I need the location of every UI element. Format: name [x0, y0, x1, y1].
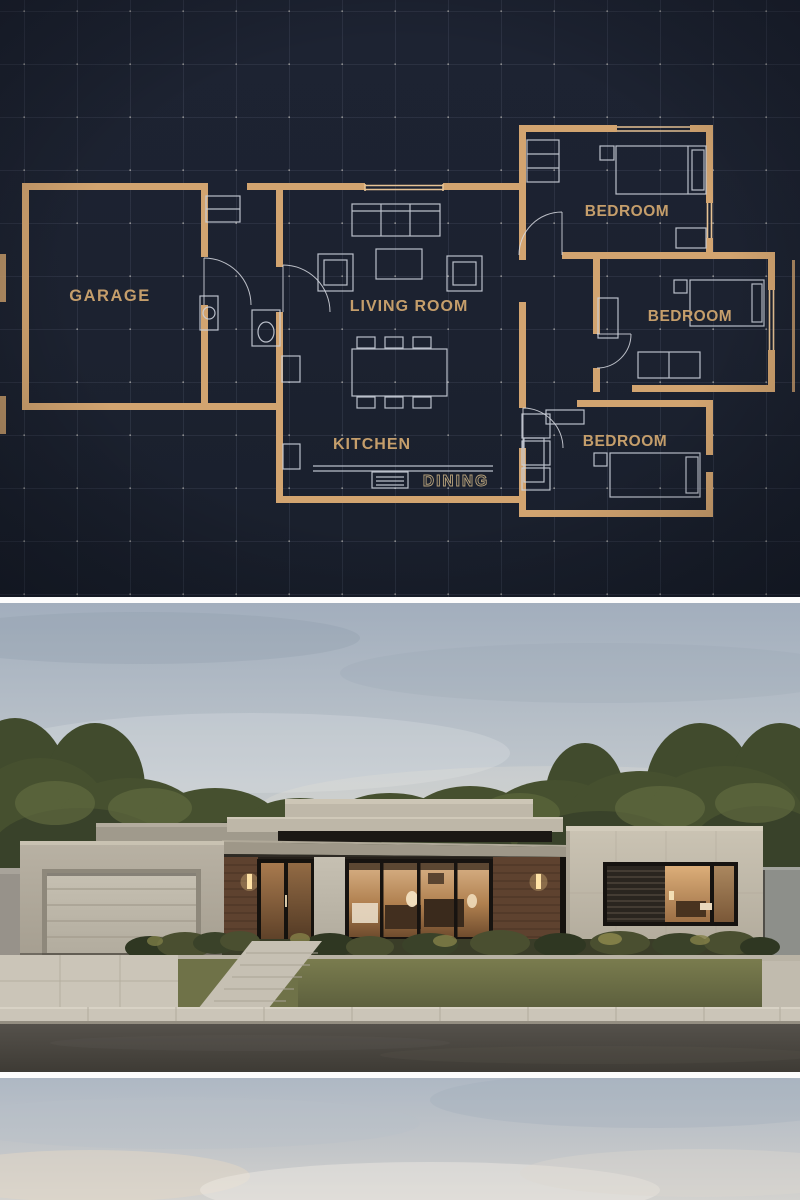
bedroom-window [603, 862, 738, 926]
entry-pillar [314, 857, 345, 943]
vignette-overlay [0, 0, 800, 597]
living-room-window [345, 859, 493, 941]
driveway [0, 955, 178, 1009]
floor-plan-section: GARAGE LIVING ROOM KITCHEN BEDROOM BEDRO… [0, 0, 800, 597]
side-path-right [762, 961, 800, 1009]
entry-sconce-left [247, 874, 252, 889]
floor-plan-image: GARAGE LIVING ROOM KITCHEN BEDROOM BEDRO… [0, 0, 800, 597]
wood-cladding-right [493, 857, 568, 943]
door-handle [285, 895, 287, 907]
page: GARAGE LIVING ROOM KITCHEN BEDROOM BEDRO… [0, 0, 800, 1200]
wood-cladding-left [222, 857, 258, 943]
entry-door [257, 859, 315, 943]
sidewalk [0, 1007, 800, 1024]
lawn-main [298, 959, 762, 1009]
footer-sky-image [0, 1078, 800, 1200]
footer-sky-section [0, 1078, 800, 1200]
upper-parapet-volume [285, 799, 533, 820]
road [0, 1024, 800, 1072]
house-render-section [0, 603, 800, 1072]
entry-sconce-right [536, 874, 541, 889]
clerestory-band [278, 831, 552, 842]
house-render-image [0, 603, 800, 1072]
